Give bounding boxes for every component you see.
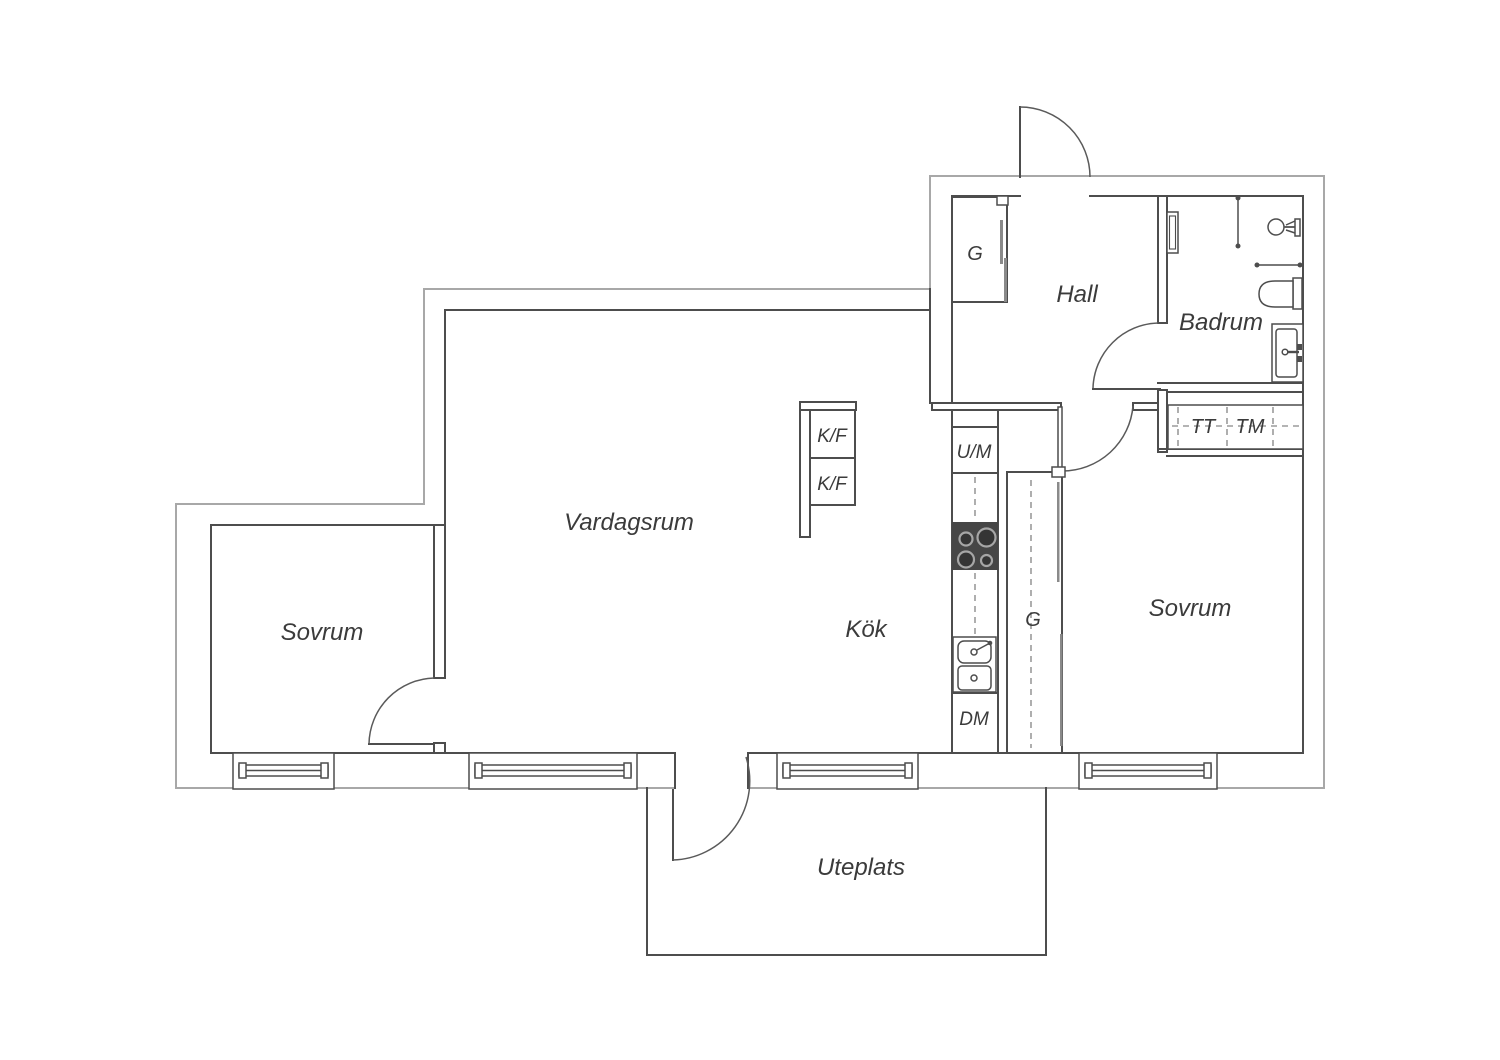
- exterior-envelope: [176, 176, 1324, 788]
- room-label-hall: Hall: [1056, 281, 1098, 308]
- entrance-door: [1020, 107, 1090, 177]
- label-tumble-dryer: TT: [1191, 416, 1217, 438]
- room-label-kok: Kök: [845, 616, 888, 643]
- patio-door: [673, 757, 750, 860]
- label-wardrobe-hall: G: [967, 243, 983, 265]
- bathroom-sink-icon: [1272, 324, 1303, 382]
- floor-plan-page: Vardagsrum Kök Sovrum Sovrum Hall Badrum…: [0, 0, 1500, 1060]
- label-oven-microwave: U/M: [957, 442, 992, 463]
- label-fridge-freezer-upper: K/F: [817, 426, 848, 447]
- label-dishwasher: DM: [959, 709, 989, 730]
- stove-icon: [952, 522, 998, 570]
- sliding-door-panel-icon: [1000, 220, 1003, 264]
- room-label-badrum: Badrum: [1179, 309, 1263, 336]
- sliding-door-panel-icon: [1060, 634, 1063, 746]
- label-washing-machine: TM: [1236, 416, 1265, 438]
- toilet-icon: [1259, 278, 1302, 309]
- windows: [233, 753, 1217, 789]
- room-label-sovrum-left: Sovrum: [281, 619, 364, 646]
- fridge-freezer-cabinet: [800, 402, 856, 537]
- sliding-door-panel-icon: [1004, 258, 1007, 302]
- window-icon: [777, 753, 918, 789]
- label-wardrobe-bedroom: G: [1025, 609, 1041, 631]
- room-label-vardagsrum: Vardagsrum: [564, 509, 694, 536]
- window-icon: [469, 753, 637, 789]
- window-icon: [1079, 753, 1217, 789]
- kitchen-door: [1058, 406, 1133, 471]
- left-bedroom-door: [369, 678, 434, 744]
- room-label-uteplats: Uteplats: [817, 854, 905, 881]
- walls: [211, 196, 1303, 788]
- floor-plan: Vardagsrum Kök Sovrum Sovrum Hall Badrum…: [0, 0, 1500, 1060]
- room-label-sovrum-right: Sovrum: [1149, 595, 1232, 622]
- label-fridge-freezer-lower: K/F: [817, 474, 848, 495]
- kitchen-sink-icon: [953, 637, 996, 692]
- window-icon: [233, 753, 334, 789]
- bathroom-door: [1093, 323, 1160, 389]
- sliding-door-panel-icon: [1057, 482, 1060, 582]
- shower-icon: [1268, 219, 1300, 236]
- bathroom-radiator-icon: [1167, 212, 1178, 253]
